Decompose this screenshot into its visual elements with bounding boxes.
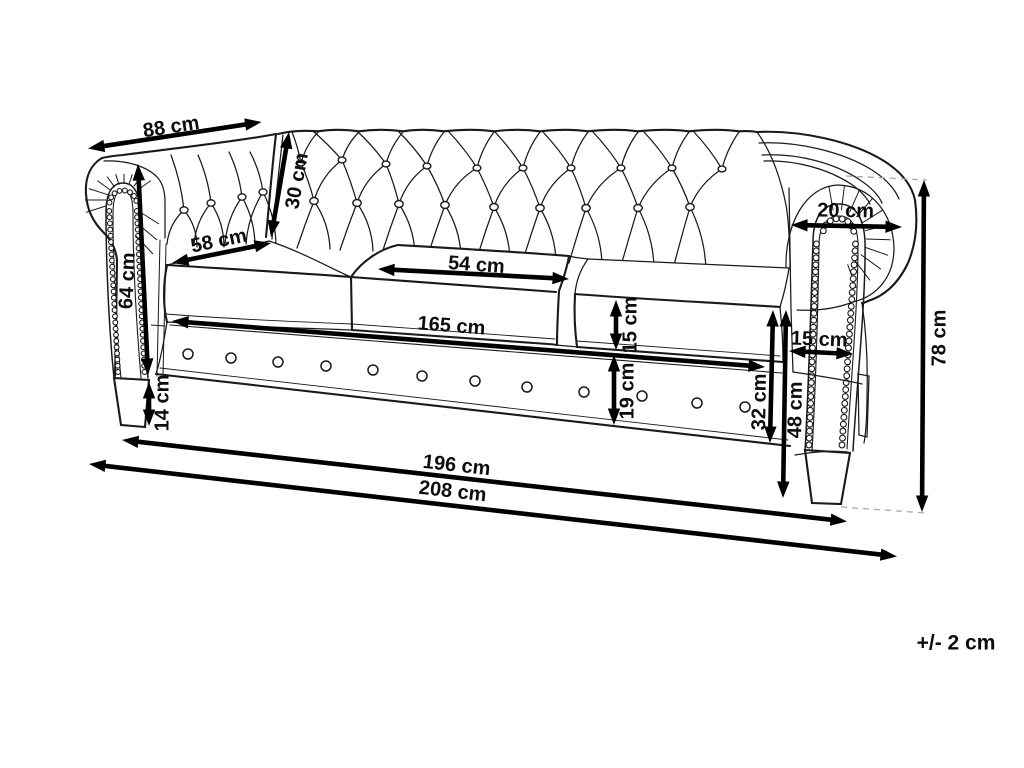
svg-text:19 cm: 19 cm [617, 363, 639, 420]
svg-text:+/- 2 cm: +/- 2 cm [917, 632, 996, 655]
svg-text:15 cm: 15 cm [620, 297, 642, 354]
svg-text:32 cm: 32 cm [748, 373, 771, 430]
svg-text:14 cm: 14 cm [152, 375, 174, 432]
svg-text:15 cm: 15 cm [790, 328, 847, 352]
svg-text:54 cm: 54 cm [447, 252, 505, 278]
svg-text:20 cm: 20 cm [817, 200, 874, 223]
svg-text:48 cm: 48 cm [784, 381, 807, 438]
svg-text:78 cm: 78 cm [929, 310, 951, 367]
svg-text:64 cm: 64 cm [115, 252, 140, 310]
